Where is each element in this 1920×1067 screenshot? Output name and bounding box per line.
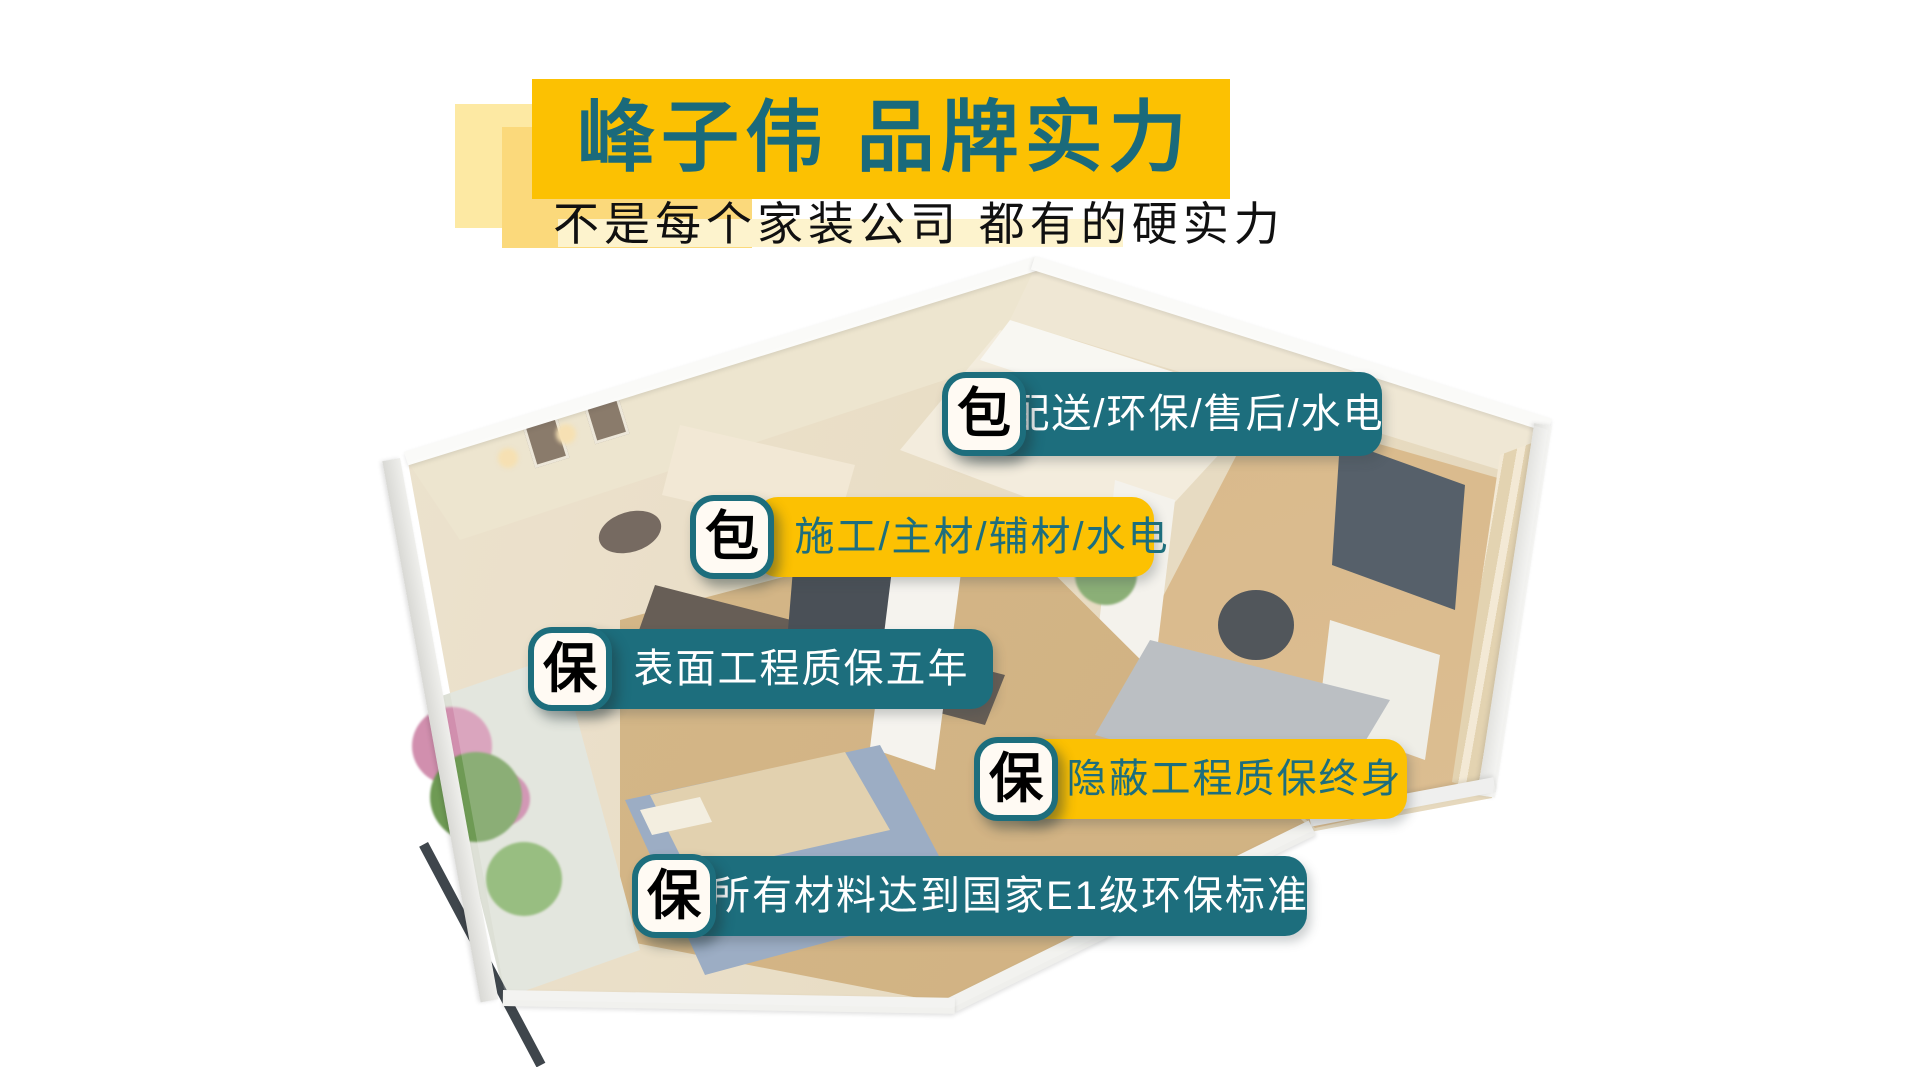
bao-guarantee-badge-icon: 保 xyxy=(632,854,716,938)
pill-surface-warranty: 保 表面工程质保五年 xyxy=(556,629,993,709)
bao-guarantee-badge-icon: 保 xyxy=(528,627,612,711)
page-title: 峰子伟 品牌实力 xyxy=(577,98,1193,176)
pill-e1-eco-standard: 保 所有材料达到国家E1级环保标准 xyxy=(658,856,1307,936)
pill-surface-warranty-label: 表面工程质保五年 xyxy=(634,649,970,689)
bao-badge-icon: 包 xyxy=(942,372,1026,456)
pill-construction-materials-label: 施工/主材/辅材/水电 xyxy=(794,517,1169,557)
pill-delivery-warranty-label: 配送/环保/售后/水电 xyxy=(1009,394,1384,434)
poster-canvas: { "poster": { "title": "峰子伟 品牌实力", "subt… xyxy=(0,0,1920,1065)
pill-hidden-works-warranty: 保 隐蔽工程质保终身 xyxy=(1008,739,1407,819)
bao-badge-icon: 包 xyxy=(690,495,774,579)
pill-construction-materials: 包 施工/主材/辅材/水电 xyxy=(756,497,1154,577)
page-subtitle: 不是每个家装公司 都有的硬实力 xyxy=(553,201,1285,247)
bao-guarantee-badge-icon: 保 xyxy=(974,737,1058,821)
pill-e1-eco-standard-label: 所有材料达到国家E1级环保标准 xyxy=(710,876,1309,916)
pill-delivery-warranty: 包 配送/环保/售后/水电 xyxy=(958,372,1382,456)
pill-hidden-works-warranty-label: 隐蔽工程质保终身 xyxy=(1067,759,1403,799)
